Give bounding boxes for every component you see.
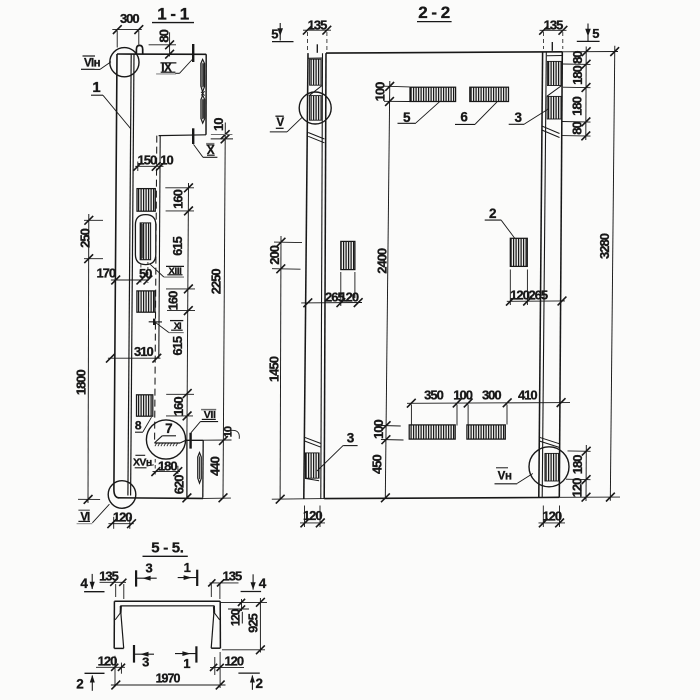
svg-text:120: 120 (231, 609, 243, 626)
svg-text:2250: 2250 (209, 269, 224, 295)
svg-text:135: 135 (223, 568, 242, 583)
svg-text:1: 1 (184, 560, 191, 575)
svg-text:5 - 5.: 5 - 5. (151, 540, 184, 557)
svg-text:80: 80 (570, 51, 585, 64)
svg-text:2 - 2: 2 - 2 (418, 3, 450, 22)
svg-text:120: 120 (510, 287, 529, 302)
svg-text:80: 80 (570, 122, 585, 135)
svg-text:3280: 3280 (597, 233, 612, 259)
svg-text:160: 160 (171, 397, 186, 416)
svg-text:160: 160 (166, 291, 181, 310)
svg-text:100: 100 (453, 387, 472, 402)
svg-text:2: 2 (489, 206, 496, 221)
svg-text:80: 80 (156, 29, 171, 42)
svg-text:200: 200 (267, 245, 282, 264)
svg-text:265: 265 (528, 287, 547, 302)
svg-text:120: 120 (542, 509, 561, 524)
svg-text:250: 250 (78, 228, 93, 247)
svg-text:180: 180 (570, 455, 585, 474)
svg-text:XVн: XVн (133, 457, 152, 469)
svg-text:3: 3 (142, 655, 149, 670)
svg-text:10: 10 (223, 426, 235, 437)
svg-text:120: 120 (303, 508, 322, 523)
svg-text:120: 120 (113, 509, 132, 524)
svg-text:7: 7 (165, 421, 172, 436)
svg-text:100: 100 (373, 82, 388, 101)
svg-text:440: 440 (208, 456, 223, 475)
svg-text:2: 2 (76, 677, 83, 692)
svg-text:180: 180 (158, 458, 177, 473)
svg-text:5: 5 (592, 26, 599, 41)
svg-text:310: 310 (134, 344, 153, 359)
svg-text:615: 615 (170, 336, 185, 355)
svg-text:135: 135 (544, 17, 563, 32)
svg-text:1970: 1970 (156, 672, 181, 686)
svg-text:925: 925 (245, 613, 260, 632)
svg-text:3: 3 (145, 561, 152, 576)
svg-text:2: 2 (256, 676, 263, 691)
svg-text:615: 615 (170, 236, 185, 255)
svg-text:120: 120 (569, 478, 584, 497)
svg-text:10: 10 (211, 118, 226, 131)
svg-text:1 - 1: 1 - 1 (157, 4, 189, 23)
svg-text:100: 100 (371, 419, 386, 438)
svg-text:620: 620 (172, 475, 187, 494)
svg-text:5: 5 (271, 27, 278, 42)
svg-text:170: 170 (96, 265, 115, 280)
svg-text:150: 150 (138, 153, 157, 168)
svg-text:1: 1 (183, 656, 190, 671)
svg-text:410: 410 (518, 388, 537, 403)
svg-text:135: 135 (308, 17, 327, 32)
svg-text:350: 350 (424, 388, 443, 403)
svg-text:VIн: VIн (84, 57, 101, 69)
svg-text:1: 1 (92, 79, 100, 96)
svg-text:135: 135 (99, 568, 118, 583)
svg-text:120: 120 (339, 290, 358, 305)
svg-text:Vн: Vн (498, 471, 512, 483)
svg-text:160: 160 (171, 189, 186, 208)
svg-text:450: 450 (370, 454, 385, 473)
svg-text:180: 180 (570, 65, 585, 84)
svg-text:10: 10 (160, 153, 173, 168)
svg-text:1450: 1450 (267, 356, 282, 382)
svg-text:120: 120 (98, 654, 117, 669)
svg-text:120: 120 (224, 654, 243, 669)
svg-text:300: 300 (120, 11, 139, 26)
svg-text:50: 50 (139, 266, 152, 281)
svg-text:1800: 1800 (73, 369, 88, 395)
svg-text:300: 300 (482, 388, 501, 403)
svg-text:180: 180 (570, 96, 585, 115)
svg-text:2400: 2400 (374, 248, 389, 274)
